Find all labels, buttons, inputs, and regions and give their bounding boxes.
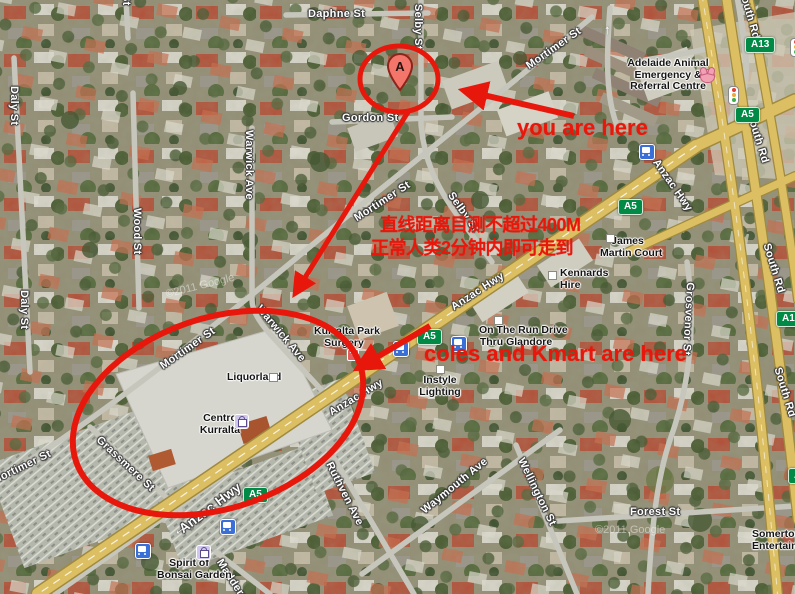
- poi-text: Instyle: [418, 375, 462, 387]
- street-label-warwick: Warwick Ave: [243, 130, 255, 200]
- street-label-daly: Daly St: [18, 290, 30, 329]
- street-label-forest: Forest St: [630, 506, 680, 518]
- poi-label-kurralta-surgery: Kurralta Park Surgery: [314, 326, 374, 349]
- road-arrow-icon: ↑: [604, 22, 611, 37]
- poi-text: Spirit of: [157, 558, 221, 570]
- poi-text: Kurralta Park: [314, 326, 374, 338]
- annotation-you-are-here: you are here: [517, 115, 648, 141]
- traffic-light-icon: [790, 38, 795, 57]
- poi-text: Martin Court: [600, 248, 655, 260]
- poi-text: Kennards: [560, 268, 608, 280]
- street-label-fragment: St: [120, 0, 132, 6]
- street-label-daphne: Daphne St: [308, 8, 365, 20]
- street-label-wood: Wood St: [131, 208, 143, 255]
- street-label-selby: Selby St: [412, 4, 424, 50]
- route-shield-a5: A5: [735, 107, 760, 123]
- poi-text: Surgery: [314, 338, 374, 350]
- route-shield-a13: A13: [788, 468, 795, 484]
- bus-stop-icon[interactable]: [393, 341, 409, 357]
- poi-text: Somerton: [752, 529, 795, 541]
- map-pin-letter: A: [395, 59, 405, 74]
- route-shield-a5: A5: [618, 199, 643, 215]
- map-pin-a[interactable]: A: [386, 52, 414, 92]
- poi-text: Entertainment: [752, 541, 795, 553]
- poi-marker-icon[interactable]: [606, 234, 615, 243]
- shopping-centre-icon[interactable]: [234, 414, 249, 429]
- street-label-daly: Daly St: [8, 86, 20, 125]
- poi-label-kennards-hire: Kennards Hire: [560, 268, 608, 291]
- poi-marker-icon[interactable]: [494, 316, 503, 325]
- bus-stop-icon[interactable]: [639, 144, 655, 160]
- poi-marker-icon[interactable]: [548, 271, 557, 280]
- bus-stop-icon[interactable]: [220, 519, 236, 535]
- map-canvas[interactable]: Daphne St Selby St Selby St Gordon St Mo…: [0, 0, 795, 594]
- annotation-distance-line2: 正常人类2分钟内即可走到: [371, 234, 573, 260]
- bus-stop-icon[interactable]: [135, 543, 151, 559]
- poi-label-somerton-entertainment: Somerton Entertainment: [752, 529, 795, 552]
- shopping-centre-icon[interactable]: [196, 545, 211, 560]
- traffic-light-icon: [728, 86, 739, 105]
- poi-marker-icon[interactable]: [269, 373, 278, 382]
- route-shield-a13: A13: [745, 37, 775, 53]
- route-shield-a13: A13: [776, 311, 795, 327]
- poi-text: Bonsai Garden: [157, 570, 221, 582]
- copyright-watermark: ©2011 Google: [595, 524, 665, 536]
- poi-text: Hire: [560, 280, 608, 292]
- animal-hospital-icon[interactable]: [700, 69, 715, 83]
- poi-text: On The Run Drive: [479, 325, 553, 337]
- poi-label-bonsai-garden: Spirit of Bonsai Garden: [157, 558, 221, 581]
- medical-centre-icon[interactable]: [347, 349, 359, 361]
- poi-text: Lighting: [418, 387, 462, 399]
- annotation-coles-kmart: coles and Kmart are here: [424, 341, 687, 367]
- route-shield-a5: A5: [243, 487, 268, 503]
- street-label-gordon: Gordon St: [342, 112, 398, 124]
- poi-label-instyle-lighting: Instyle Lighting: [418, 375, 462, 398]
